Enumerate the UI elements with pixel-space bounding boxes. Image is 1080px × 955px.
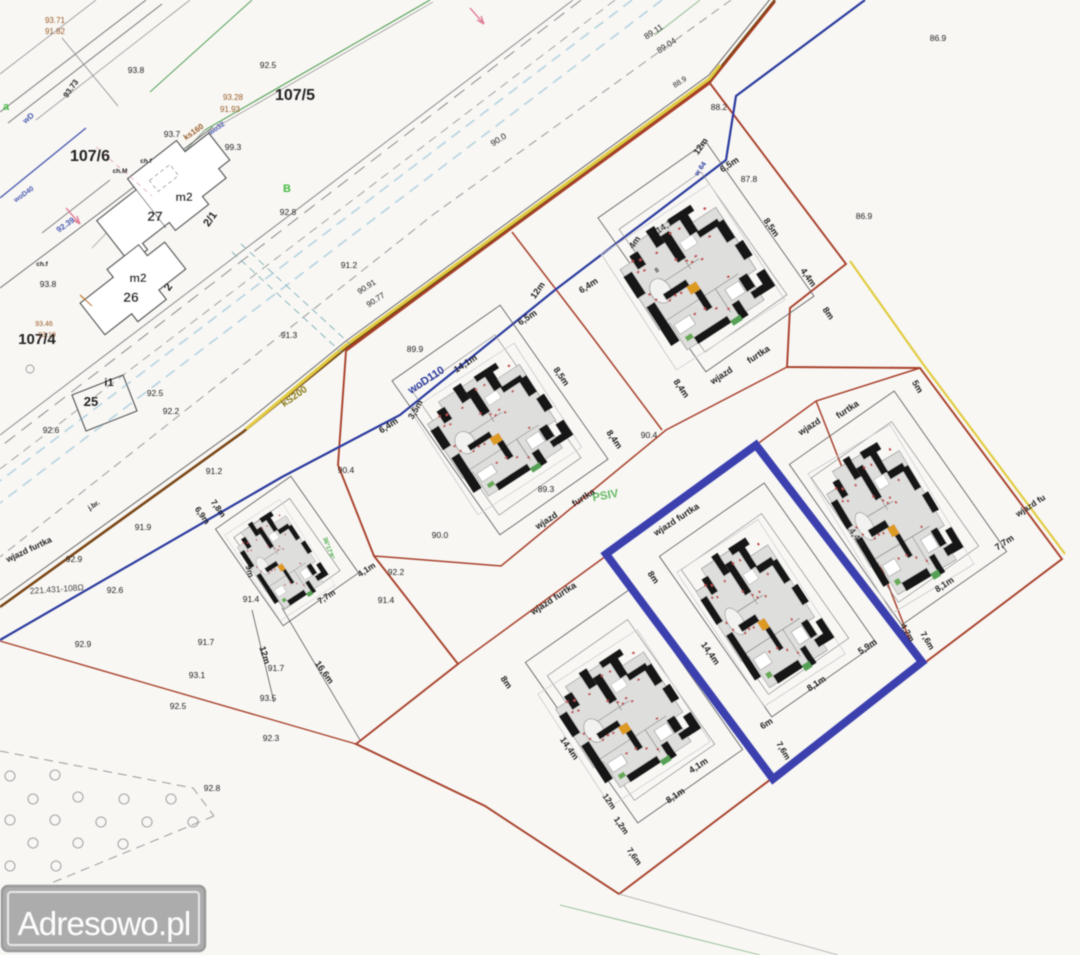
svg-text:86.9: 86.9 <box>930 33 947 43</box>
svg-text:91.7: 91.7 <box>198 637 215 647</box>
svg-text:92.5: 92.5 <box>147 388 164 398</box>
svg-text:99.3: 99.3 <box>225 142 242 152</box>
svg-text:91.3: 91.3 <box>281 330 298 340</box>
svg-text:m2: m2 <box>175 190 193 204</box>
svg-text:90.4: 90.4 <box>641 430 658 440</box>
svg-text:93.5: 93.5 <box>260 693 277 703</box>
svg-text:a: a <box>3 101 10 113</box>
svg-text:91.4: 91.4 <box>243 594 260 604</box>
svg-text:91.9: 91.9 <box>135 522 152 532</box>
svg-text:88.2: 88.2 <box>711 102 728 112</box>
svg-text:B: B <box>283 183 291 195</box>
svg-text:92.8: 92.8 <box>280 207 297 217</box>
svg-text:93.46: 93.46 <box>35 321 53 328</box>
svg-text:89.9: 89.9 <box>407 344 424 354</box>
svg-text:91.82: 91.82 <box>45 27 66 36</box>
svg-text:25: 25 <box>84 394 98 409</box>
svg-text:92.3: 92.3 <box>263 733 280 743</box>
svg-text:90.0: 90.0 <box>432 530 449 540</box>
svg-text:93.8: 93.8 <box>40 279 57 289</box>
svg-text:90.4: 90.4 <box>338 465 355 475</box>
svg-text:i1: i1 <box>104 377 113 389</box>
svg-text:87.8: 87.8 <box>741 174 758 184</box>
svg-text:91.7: 91.7 <box>268 663 285 673</box>
svg-text:ch.M: ch.M <box>113 168 128 175</box>
svg-text:26: 26 <box>123 289 139 305</box>
svg-text:86.9: 86.9 <box>856 211 873 221</box>
svg-text:93.7: 93.7 <box>164 129 181 139</box>
svg-text:107/4: 107/4 <box>18 331 56 348</box>
svg-text:93.28: 93.28 <box>223 93 244 102</box>
svg-text:91.93: 91.93 <box>220 105 241 114</box>
svg-text:m2: m2 <box>129 271 147 285</box>
svg-text:91.2: 91.2 <box>206 466 223 476</box>
svg-text:92.2: 92.2 <box>388 567 405 577</box>
svg-text:107/5: 107/5 <box>275 87 315 104</box>
svg-text:93.71: 93.71 <box>45 16 66 25</box>
svg-text:92.6: 92.6 <box>43 425 60 435</box>
svg-text:91.2: 91.2 <box>341 260 358 270</box>
svg-text:92.2: 92.2 <box>163 406 180 416</box>
svg-text:107/6: 107/6 <box>70 148 110 165</box>
svg-text:89.3: 89.3 <box>538 484 555 494</box>
svg-text:93.1: 93.1 <box>189 670 206 680</box>
svg-text:92.9: 92.9 <box>75 639 92 649</box>
svg-text:Adresowo.pl: Adresowo.pl <box>18 905 191 942</box>
svg-text:92.5: 92.5 <box>260 60 277 70</box>
svg-text:ch.f: ch.f <box>140 158 152 165</box>
svg-text:92.5: 92.5 <box>170 701 187 711</box>
svg-text:92.8: 92.8 <box>204 783 221 793</box>
svg-text:92.6: 92.6 <box>107 585 124 595</box>
svg-text:93.8: 93.8 <box>128 65 145 75</box>
svg-text:ch.f: ch.f <box>36 261 48 268</box>
svg-text:92.9: 92.9 <box>66 554 83 564</box>
svg-text:27: 27 <box>147 208 163 224</box>
svg-text:91.4: 91.4 <box>378 595 395 605</box>
